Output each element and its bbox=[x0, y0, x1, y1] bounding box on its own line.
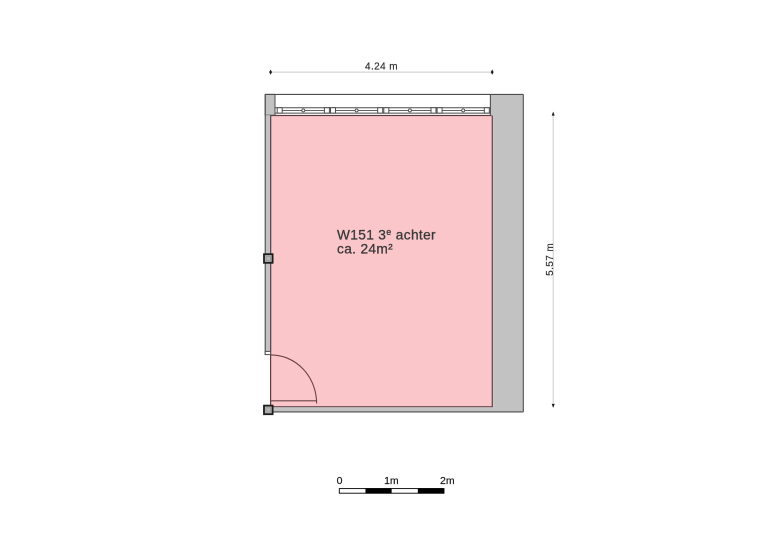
svg-text:4.24 m: 4.24 m bbox=[365, 62, 398, 73]
svg-text:1m: 1m bbox=[384, 475, 399, 487]
svg-text:0: 0 bbox=[337, 475, 343, 487]
svg-text:5.57 m: 5.57 m bbox=[545, 243, 556, 276]
svg-text:2m: 2m bbox=[440, 475, 455, 487]
svg-text:ca. 24m²: ca. 24m² bbox=[337, 241, 393, 256]
